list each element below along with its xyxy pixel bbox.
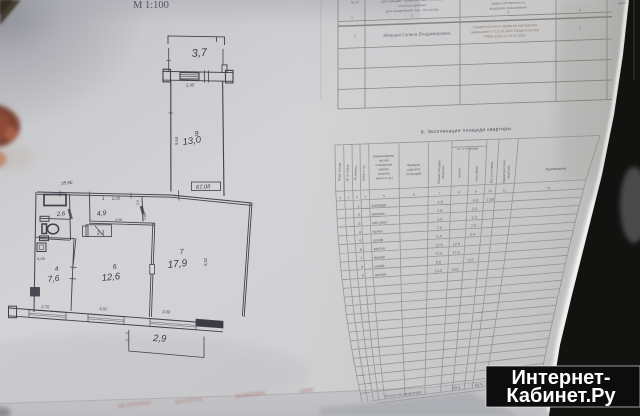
svg-text:4.9: 4.9 — [473, 199, 478, 203]
svg-text:шкаф: шкаф — [374, 264, 384, 269]
svg-text:10: 10 — [488, 189, 492, 193]
svg-text:2: 2 — [411, 14, 413, 18]
svg-text:5: 5 — [359, 239, 361, 243]
svg-text:0.4: 0.4 — [470, 233, 476, 237]
svg-text:2: 2 — [358, 213, 360, 217]
svg-text:4: 4 — [359, 230, 361, 234]
svg-text:12,6: 12,6 — [101, 271, 121, 284]
svg-text:№ помещ.: № помещ. — [353, 165, 357, 180]
svg-text:7.6: 7.6 — [437, 226, 443, 230]
svg-text:3: 3 — [358, 222, 360, 226]
svg-text:в т.ч. площадь: в т.ч. площадь — [458, 146, 479, 151]
svg-text:квартиры: квартиры — [506, 164, 510, 178]
svg-text:3,02: 3,02 — [99, 306, 108, 312]
svg-text:1: 1 — [102, 196, 105, 202]
svg-text:2,20: 2,20 — [111, 196, 121, 202]
svg-text:Высота помещ.: Высота помещ. — [489, 161, 493, 183]
svg-text:12: 12 — [547, 186, 551, 190]
svg-text:11: 11 — [503, 188, 507, 192]
svg-text:жилая: жилая — [375, 272, 386, 277]
svg-text:3,7: 3,7 — [191, 47, 208, 60]
svg-text:2,1: 2,1 — [96, 230, 105, 237]
svg-text:Кабинет.Ру: Кабинет.Ру — [506, 385, 616, 407]
svg-text:2,6: 2,6 — [56, 211, 67, 218]
svg-text:0,5: 0,5 — [136, 200, 140, 205]
svg-text:7: 7 — [360, 257, 362, 261]
svg-text:5,62: 5,62 — [203, 257, 208, 266]
svg-text:Формулаподсчетаплощадей: Формулаподсчетаплощадей — [406, 163, 422, 176]
svg-text:13.0: 13.0 — [434, 269, 442, 274]
svg-text:М 1:100: М 1:100 — [133, 0, 169, 11]
svg-text:сан.узел: сан.узел — [372, 220, 387, 225]
svg-text:1.0: 1.0 — [437, 217, 442, 221]
svg-text:7.6: 7.6 — [471, 224, 477, 228]
svg-text:2,08: 2,08 — [114, 218, 122, 222]
svg-text:67,08: 67,08 — [196, 184, 212, 191]
svg-text:№ по плану: № по плану — [345, 164, 349, 181]
svg-text:4,05: 4,05 — [37, 256, 46, 261]
svg-text:жилая: жилая — [373, 247, 384, 252]
svg-text:±8,90: ±8,90 — [61, 180, 73, 186]
svg-text:ванная: ванная — [372, 212, 385, 217]
svg-text:2,45: 2,45 — [185, 83, 195, 88]
svg-text:жилая: жилая — [374, 255, 385, 260]
svg-text:1: 1 — [351, 16, 353, 20]
svg-text:1.0: 1.0 — [471, 216, 476, 220]
svg-text:№ пп: № пп — [351, 0, 359, 4]
svg-text:2.6: 2.6 — [437, 209, 442, 213]
svg-text:шкаф: шкаф — [373, 238, 383, 243]
svg-text:0.6: 0.6 — [468, 258, 474, 262]
svg-text:12.6: 12.6 — [453, 242, 461, 246]
svg-text:2,80: 2,80 — [143, 213, 147, 221]
svg-text:7,6: 7,6 — [47, 273, 60, 284]
svg-text:4,9: 4,9 — [96, 210, 107, 218]
svg-text:9: 9 — [362, 274, 364, 278]
svg-text:8: 8 — [361, 265, 363, 269]
svg-text:кухня: кухня — [373, 229, 383, 234]
svg-text:6: 6 — [360, 248, 362, 252]
svg-text:2.6: 2.6 — [472, 207, 477, 211]
svg-text:17.9: 17.9 — [435, 252, 443, 256]
svg-text:жилая: жилая — [457, 168, 461, 177]
svg-text:17,9: 17,9 — [167, 258, 188, 271]
svg-text:коридор: коридор — [372, 203, 387, 208]
svg-text:2,9: 2,9 — [152, 333, 167, 345]
svg-text:2,70: 2,70 — [40, 304, 50, 310]
svg-text:3,00: 3,00 — [162, 309, 171, 315]
svg-text:кухни и т.д.: кухни и т.д. — [361, 165, 365, 181]
svg-text:квартиры: квартиры — [441, 164, 445, 178]
svg-text:1: 1 — [357, 204, 359, 208]
svg-text:5,64: 5,64 — [174, 136, 179, 145]
svg-text:Этаж литера: Этаж литера — [337, 163, 341, 182]
svg-text:3: 3 — [507, 11, 509, 15]
svg-text:0.4: 0.4 — [436, 235, 442, 239]
svg-text:4: 4 — [579, 8, 581, 12]
svg-text:подсобная: подсобная — [474, 166, 478, 182]
svg-text:13.0: 13.0 — [451, 268, 459, 273]
svg-text:венн: венн — [618, 1, 626, 5]
svg-text:0.6: 0.6 — [436, 260, 442, 264]
svg-text:2.50: 2.50 — [486, 198, 494, 202]
svg-text:12.6: 12.6 — [435, 243, 443, 247]
svg-text:17.9: 17.9 — [452, 250, 460, 254]
svg-text:4.9: 4.9 — [437, 200, 442, 204]
